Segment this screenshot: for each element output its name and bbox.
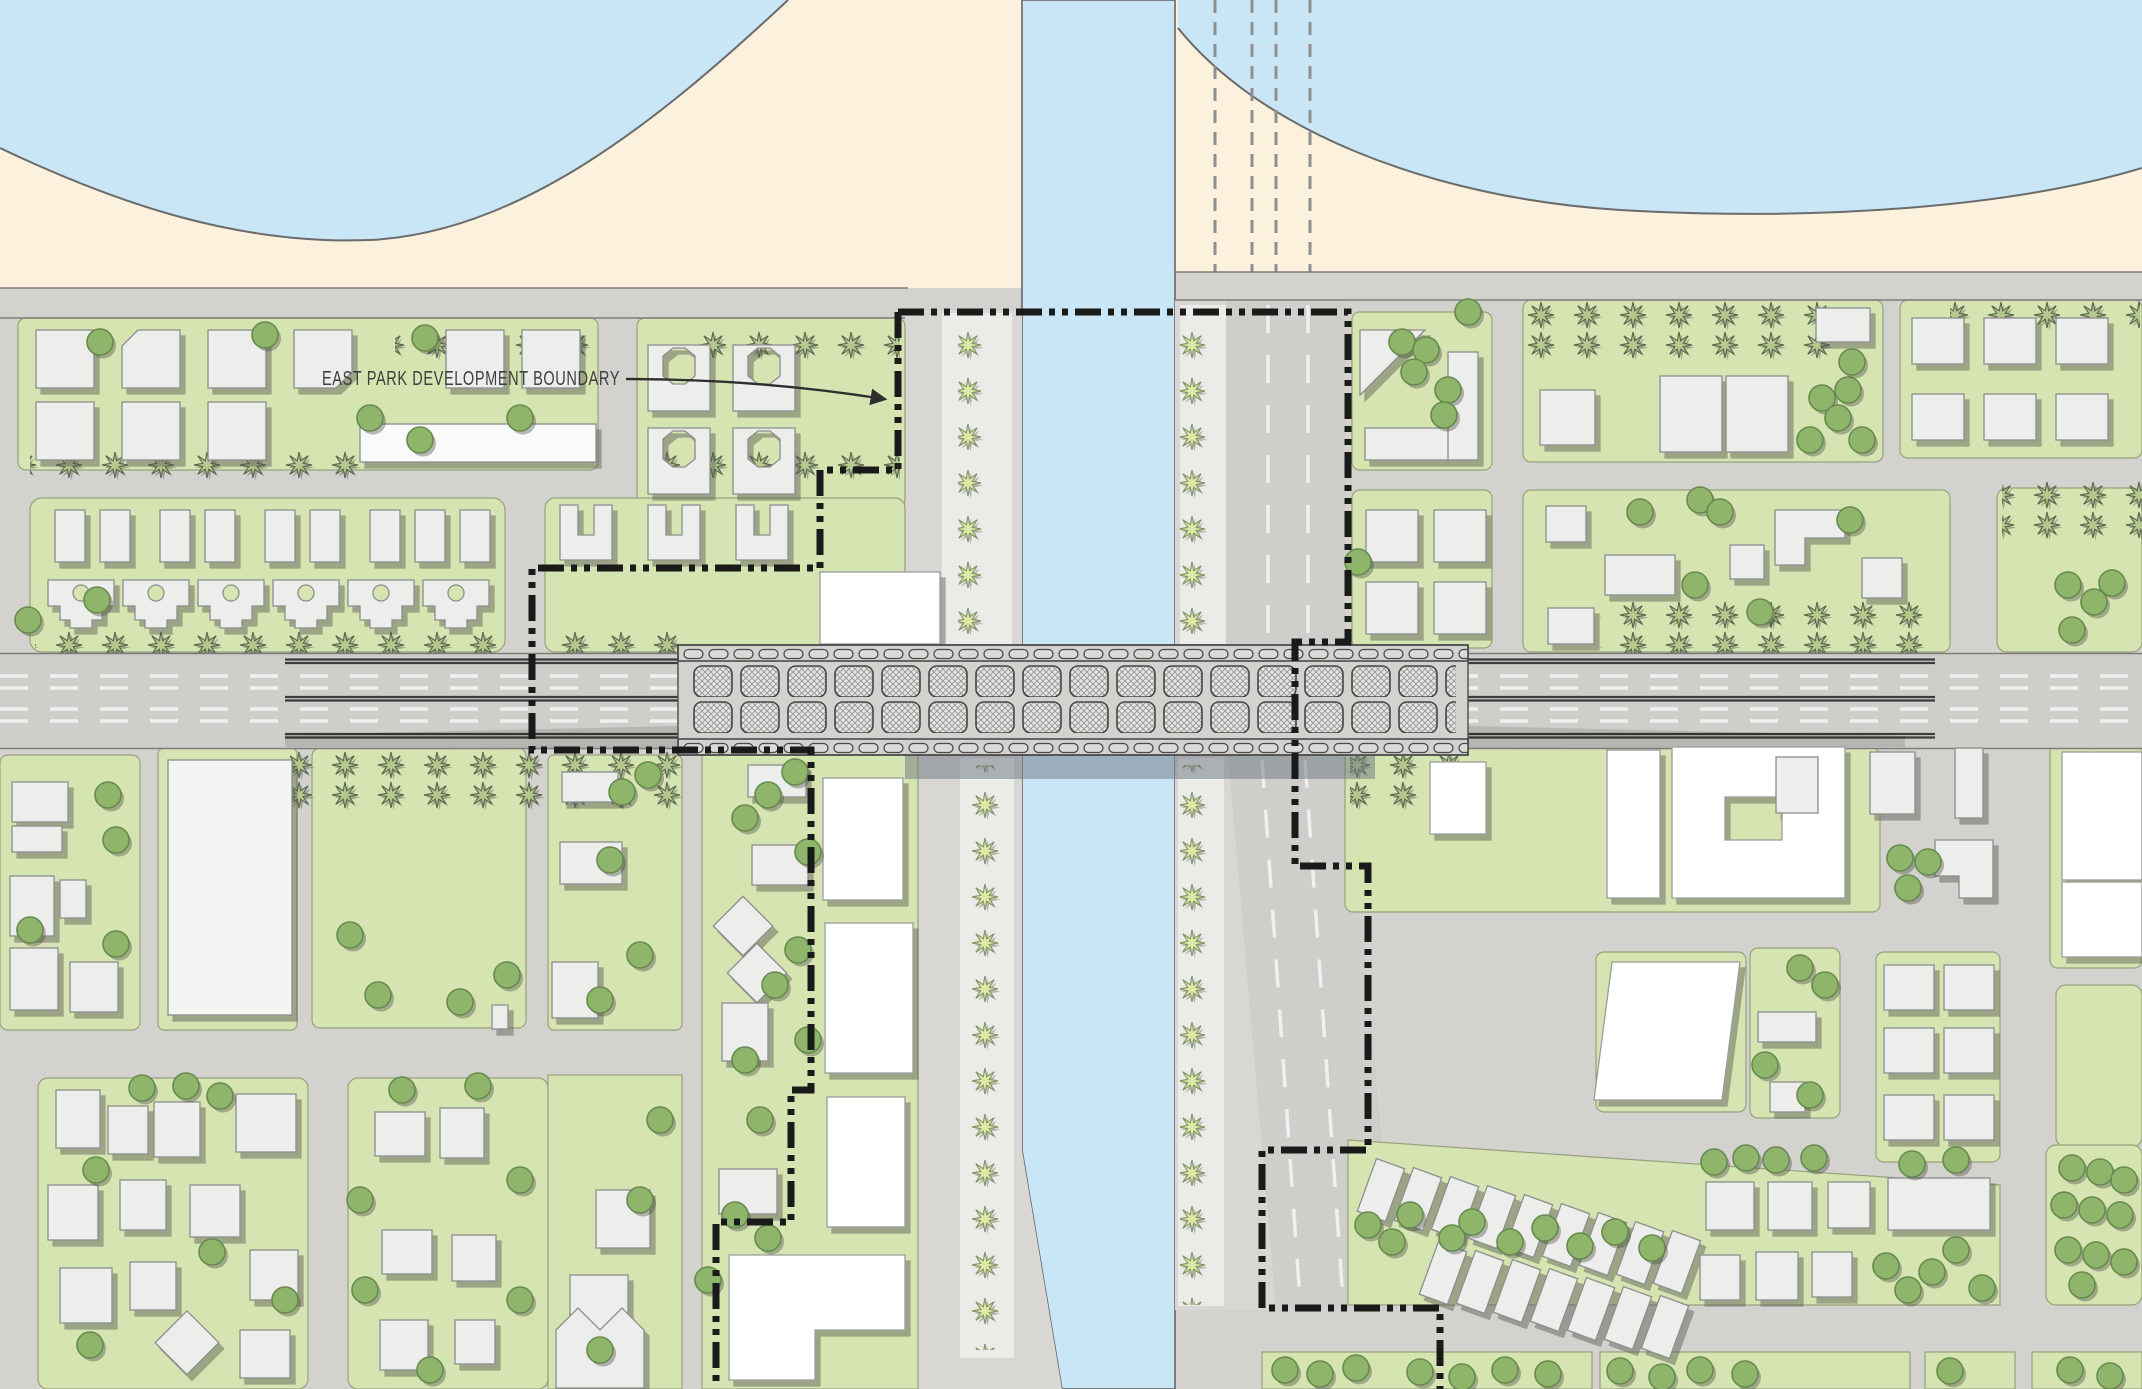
palm-promenade-west-north — [958, 318, 994, 640]
palm-promenade-east-south — [1180, 765, 1210, 1305]
block-se-f2-buildings — [2062, 752, 2142, 957]
palm-promenade-east-north — [1180, 315, 1210, 645]
bridge-shadow — [905, 753, 1375, 779]
boundary-label: EAST PARK DEVELOPMENT BOUNDARY — [322, 368, 620, 390]
bridge-planter-row-north — [690, 663, 1456, 697]
site-plan-map: EAST PARK DEVELOPMENT BOUNDARY — [0, 0, 2142, 1389]
plan-canvas: EAST PARK DEVELOPMENT BOUNDARY — [0, 0, 2142, 1389]
bridge-planter-row-south — [690, 699, 1456, 733]
palm-promenade-west-south — [970, 765, 1006, 1350]
bridge-railing-north — [678, 645, 1468, 661]
